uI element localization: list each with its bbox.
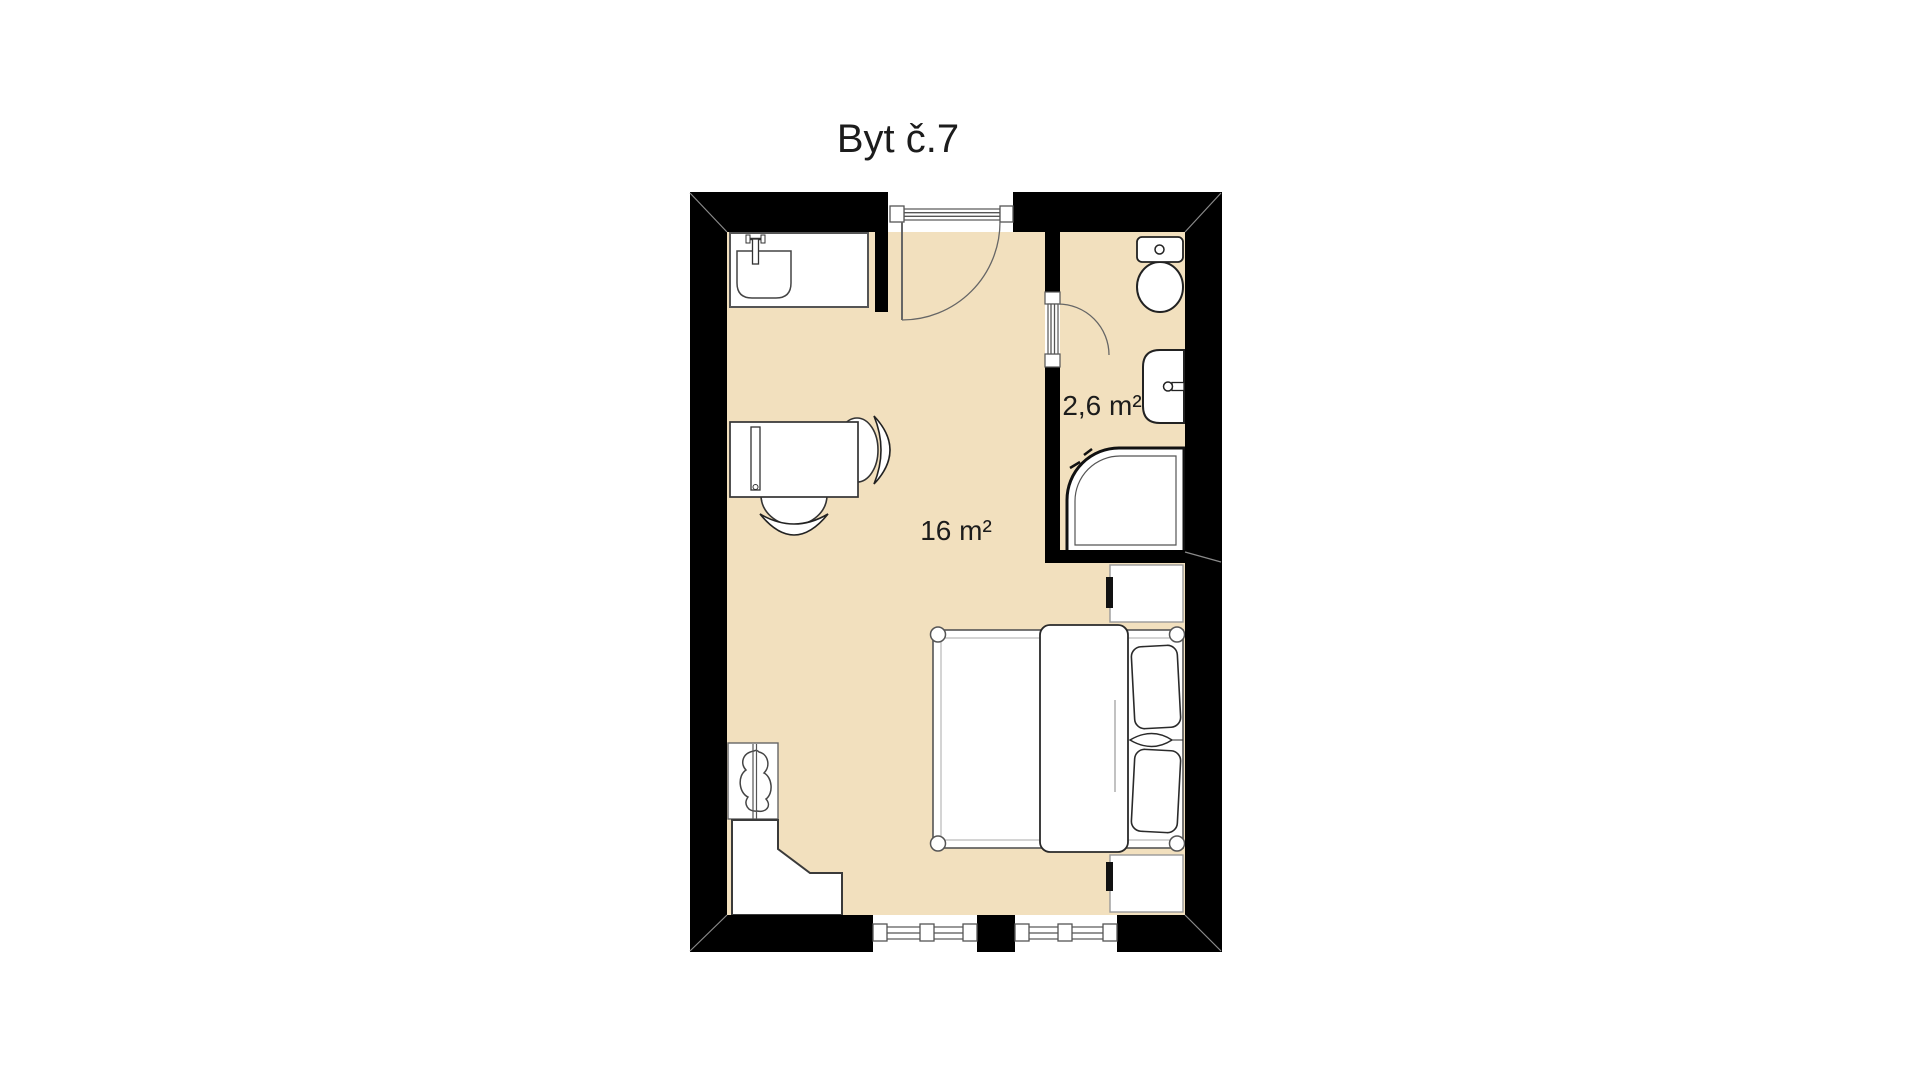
toilet — [1137, 237, 1183, 312]
bed-post-bl — [931, 836, 946, 851]
pillow-top — [1131, 645, 1181, 729]
wall-sink-stub — [875, 232, 888, 312]
wardrobe-rail — [728, 743, 778, 819]
monitor-foot — [753, 485, 758, 490]
washbasin-faucet — [1172, 383, 1184, 391]
plan-title: Byt č.7 — [837, 117, 959, 161]
wall-bottom-right — [1117, 915, 1222, 952]
wall-bottom-pier — [977, 915, 1015, 952]
bathroom-jamb-top — [1045, 292, 1060, 304]
window-left-mullion-3 — [963, 924, 977, 941]
window-right-mullion-3 — [1103, 924, 1117, 941]
entrance-jamb-right — [1000, 206, 1013, 222]
bathroom-jamb-bottom — [1045, 354, 1060, 367]
nightstand-bottom — [1110, 855, 1183, 912]
monitor — [751, 427, 760, 490]
window-left-mullion-1 — [873, 924, 887, 941]
kitchen-sink — [730, 233, 868, 307]
floorplan-svg: Byt č.7 — [0, 0, 1920, 1080]
nightstand-top-handle — [1106, 577, 1113, 608]
window-right — [1015, 924, 1117, 941]
desk — [730, 422, 858, 497]
wall-bathroom-bottom — [1045, 550, 1185, 563]
living-room-label: 16 m² — [920, 515, 992, 546]
faucet-spout — [753, 239, 759, 264]
faucet-knob-right — [761, 235, 765, 243]
nightstand-bottom-handle — [1106, 862, 1113, 891]
bed-post-tl — [931, 627, 946, 642]
window-right-mullion-2 — [1058, 924, 1072, 941]
sink-basin — [737, 251, 791, 298]
washbasin-faucet-knob — [1164, 382, 1173, 391]
window-left — [873, 924, 977, 941]
toilet-bowl — [1137, 262, 1183, 312]
wall-partition-upper — [1045, 232, 1060, 293]
shower-enclosure — [1067, 448, 1184, 552]
entrance-door-band — [904, 209, 1000, 220]
bed-post-br — [1170, 836, 1185, 851]
flush-button — [1155, 245, 1164, 254]
wall-partition-lower — [1045, 367, 1060, 553]
floorplan-canvas: Byt č.7 — [0, 0, 1920, 1080]
bathroom-door-leaf — [1048, 304, 1058, 354]
shower — [1067, 448, 1184, 552]
washbasin — [1143, 350, 1184, 423]
window-left-mullion-2 — [920, 924, 934, 941]
window-right-mullion-1 — [1015, 924, 1029, 941]
entrance-jamb-left — [890, 206, 904, 222]
bathroom-label: 2,6 m² — [1062, 390, 1141, 421]
pillow-bottom — [1131, 749, 1181, 833]
wall-bottom-left — [690, 915, 873, 952]
wall-left — [690, 192, 727, 952]
faucet-knob-left — [746, 235, 750, 243]
bed-post-tr — [1170, 627, 1185, 642]
bed — [931, 625, 1185, 852]
wall-right — [1185, 192, 1222, 952]
nightstand-top — [1110, 565, 1183, 622]
